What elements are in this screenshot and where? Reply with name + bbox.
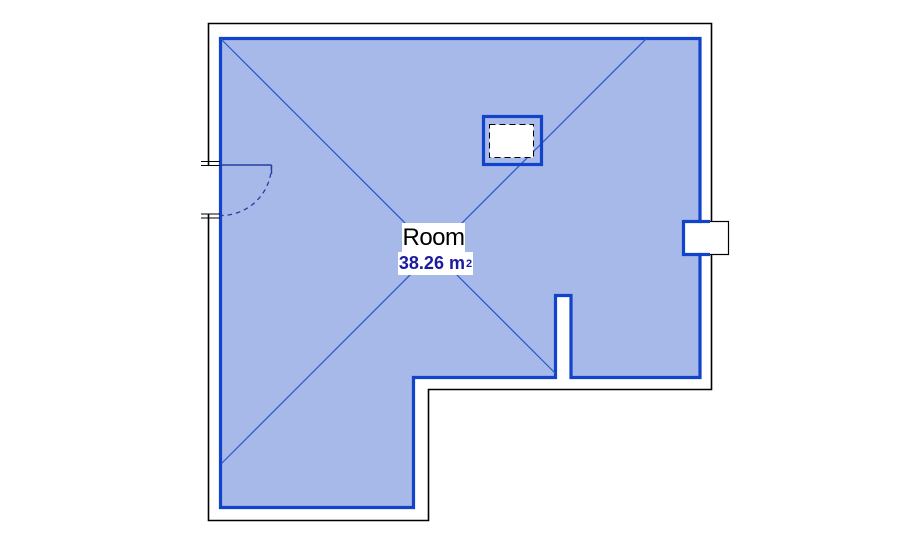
door-jamb-bottom bbox=[201, 214, 220, 218]
right-wall-box[interactable] bbox=[684, 222, 729, 255]
door-jamb-top bbox=[201, 162, 220, 166]
floor-plan-canvas: Room 38.26 m 2 bbox=[0, 0, 922, 540]
room-area-label[interactable]: 38.26 m 2 bbox=[398, 252, 473, 275]
skylight-inner-dashed-rect bbox=[490, 125, 534, 158]
room-area-value: 38.26 bbox=[399, 253, 444, 274]
room-name-label[interactable]: Room bbox=[402, 223, 465, 252]
room-area-unit: m bbox=[449, 253, 465, 274]
